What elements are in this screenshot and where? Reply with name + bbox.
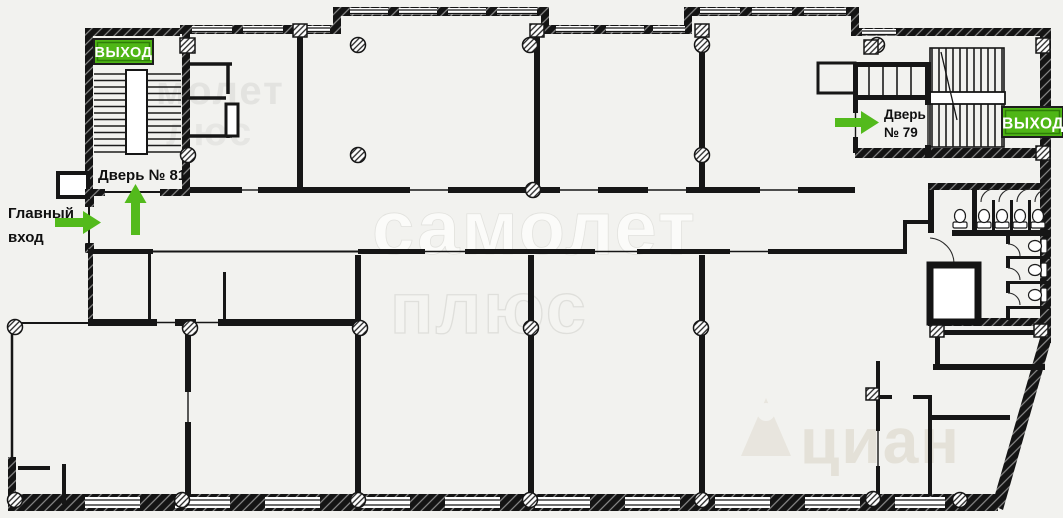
watermark-brand-center-2: плюс <box>390 269 588 349</box>
exit-sign-left-label: ВЫХОД <box>95 45 153 61</box>
main-entrance-label-line1: Главный <box>8 205 74 222</box>
exit-sign-left: ВЫХОД <box>94 39 153 64</box>
floor-plan-page: молет люс самолет плюс циан <box>0 0 1063 518</box>
exit-sign-right-label: ВЫХОД <box>1002 116 1063 133</box>
watermark-brand-center-1: самолет <box>372 186 697 271</box>
stair-stringer <box>126 70 147 154</box>
door-81-label: Дверь № 81 <box>98 167 186 184</box>
main-entrance-label-line2: вход <box>8 229 44 246</box>
entrance-vestibule <box>58 173 88 197</box>
shaft <box>930 265 978 322</box>
door-79-label-line2: № 79 <box>884 125 918 140</box>
stair-landing <box>929 92 1005 104</box>
door-79-label-line1: Дверь <box>884 107 926 122</box>
floor-plan: молет люс самолет плюс циан <box>0 0 1063 518</box>
exit-sign-right: ВЫХОД <box>1002 107 1063 137</box>
